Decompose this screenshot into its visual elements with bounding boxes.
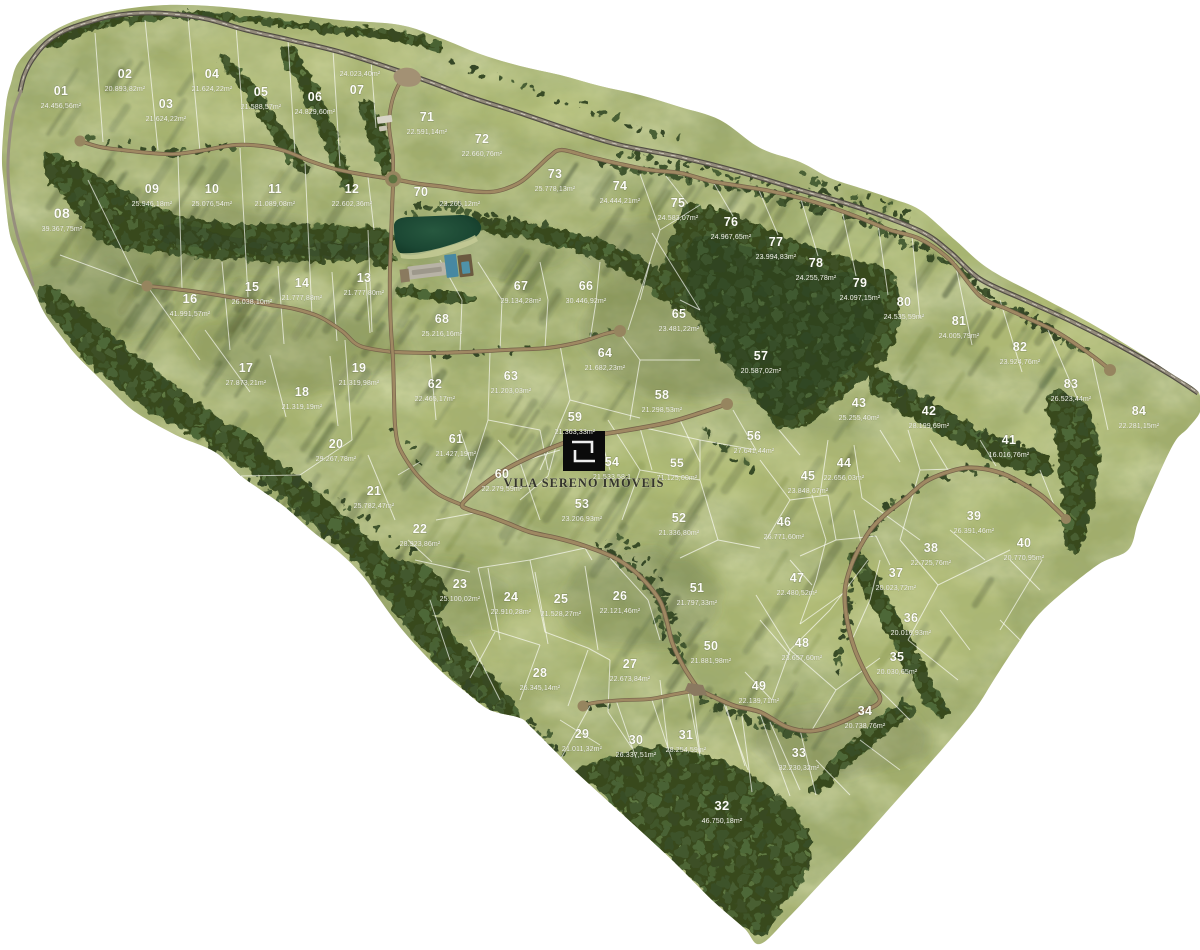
svg-text:25.076,54m²: 25.076,54m² <box>192 201 233 208</box>
svg-text:22: 22 <box>413 522 428 536</box>
svg-text:25.100,02m²: 25.100,02m² <box>440 596 481 603</box>
svg-text:22.602,36m²: 22.602,36m² <box>332 201 373 208</box>
svg-text:77: 77 <box>769 235 784 249</box>
svg-text:VILA SERENO IMÓVEIS: VILA SERENO IMÓVEIS <box>503 476 664 490</box>
svg-text:21.777,80m²: 21.777,80m² <box>344 290 385 297</box>
svg-text:28.254,59m²: 28.254,59m² <box>666 747 707 754</box>
svg-text:79: 79 <box>853 276 868 290</box>
svg-text:75: 75 <box>671 196 686 210</box>
svg-text:17: 17 <box>239 361 254 375</box>
svg-text:21.319,19m²: 21.319,19m² <box>282 404 323 411</box>
svg-text:62: 62 <box>428 377 443 391</box>
svg-text:64: 64 <box>598 346 613 360</box>
svg-text:67: 67 <box>514 279 529 293</box>
svg-text:21.624,22m²: 21.624,22m² <box>192 86 233 93</box>
svg-text:21.319,98m²: 21.319,98m² <box>339 380 380 387</box>
svg-text:22.725,76m²: 22.725,76m² <box>911 560 952 567</box>
svg-text:26.038,10m²: 26.038,10m² <box>232 299 273 306</box>
svg-text:34: 34 <box>858 704 873 718</box>
svg-text:50: 50 <box>704 639 719 653</box>
svg-text:56: 56 <box>747 429 762 443</box>
svg-text:20.587,02m²: 20.587,02m² <box>741 368 782 375</box>
svg-text:28: 28 <box>533 666 548 680</box>
svg-text:15: 15 <box>245 280 260 294</box>
svg-text:20.738,76m²: 20.738,76m² <box>845 723 886 730</box>
svg-text:24.583,07m²: 24.583,07m² <box>658 215 699 222</box>
svg-text:29.134,28m²: 29.134,28m² <box>501 298 542 305</box>
svg-text:21.533,58,1: 21.533,58,1 <box>593 474 631 481</box>
svg-text:49: 49 <box>752 679 767 693</box>
svg-text:07: 07 <box>350 83 365 97</box>
svg-text:52: 52 <box>672 511 687 525</box>
svg-text:29: 29 <box>575 727 590 741</box>
svg-text:82: 82 <box>1013 340 1028 354</box>
svg-text:02: 02 <box>118 67 133 81</box>
svg-text:22.281,15m²: 22.281,15m² <box>1119 423 1160 430</box>
svg-text:20: 20 <box>329 437 344 451</box>
svg-text:24.444,21m²: 24.444,21m² <box>600 198 641 205</box>
svg-text:23.848,67m²: 23.848,67m² <box>788 488 829 495</box>
svg-text:22.673,84m²: 22.673,84m² <box>610 676 651 683</box>
svg-text:25.216,16m²: 25.216,16m² <box>422 331 463 338</box>
svg-text:60: 60 <box>495 467 510 481</box>
svg-text:22.591,14m²: 22.591,14m² <box>407 129 448 136</box>
svg-text:44: 44 <box>837 456 852 470</box>
svg-text:84: 84 <box>1132 404 1147 418</box>
svg-text:21.881,98m²: 21.881,98m² <box>691 658 732 665</box>
svg-text:25.255,40m²: 25.255,40m² <box>839 415 880 422</box>
svg-text:26.523,44m²: 26.523,44m² <box>1051 396 1092 403</box>
svg-text:21.203,03m²: 21.203,03m² <box>491 388 532 395</box>
svg-text:26.337,51m²: 26.337,51m² <box>616 752 657 759</box>
svg-text:32: 32 <box>714 798 729 813</box>
svg-text:10: 10 <box>205 182 220 196</box>
svg-text:41.991,57m²: 41.991,57m² <box>170 311 211 318</box>
svg-text:24.967,65m²: 24.967,65m² <box>711 234 752 241</box>
svg-text:19: 19 <box>352 361 367 375</box>
svg-text:27: 27 <box>623 657 638 671</box>
svg-text:48: 48 <box>795 636 810 650</box>
svg-text:59: 59 <box>568 410 583 424</box>
svg-text:14: 14 <box>295 276 310 290</box>
svg-text:40: 40 <box>1017 536 1032 550</box>
svg-text:12: 12 <box>345 182 360 196</box>
svg-text:36: 36 <box>904 611 919 625</box>
svg-text:20.023,72m²: 20.023,72m² <box>876 585 917 592</box>
svg-text:35: 35 <box>890 650 905 664</box>
svg-text:20.030,65m²: 20.030,65m² <box>877 669 918 676</box>
svg-text:25: 25 <box>554 592 569 606</box>
svg-text:24.023,40m²: 24.023,40m² <box>340 71 381 78</box>
svg-text:58: 58 <box>655 388 670 402</box>
svg-text:20.016,93m²: 20.016,93m² <box>891 630 932 637</box>
svg-text:03: 03 <box>159 97 174 111</box>
svg-text:70: 70 <box>414 185 429 199</box>
svg-text:20.770,95m²: 20.770,95m² <box>1004 555 1045 562</box>
svg-text:76: 76 <box>724 215 739 229</box>
svg-text:11: 11 <box>268 182 282 196</box>
svg-text:26.345,14m²: 26.345,14m² <box>520 685 561 692</box>
svg-text:54: 54 <box>605 455 620 469</box>
svg-text:22.465,17m²: 22.465,17m² <box>415 396 456 403</box>
svg-text:66: 66 <box>579 279 594 293</box>
svg-text:25.778,13m²: 25.778,13m² <box>535 186 576 193</box>
svg-text:26: 26 <box>613 589 628 603</box>
svg-text:21.624,22m²: 21.624,22m² <box>146 116 187 123</box>
svg-text:33: 33 <box>792 746 807 760</box>
svg-text:26.771,60m²: 26.771,60m² <box>764 534 805 541</box>
svg-text:24.097,15m²: 24.097,15m² <box>840 295 881 302</box>
svg-text:09: 09 <box>145 182 160 196</box>
svg-text:21.089,08m²: 21.089,08m² <box>255 201 296 208</box>
svg-text:71: 71 <box>420 110 435 124</box>
svg-text:83: 83 <box>1064 377 1079 391</box>
svg-text:27.873,21m²: 27.873,21m² <box>226 380 267 387</box>
svg-text:22.279,59m²: 22.279,59m² <box>482 486 523 493</box>
svg-text:73: 73 <box>548 167 563 181</box>
svg-text:37: 37 <box>889 566 904 580</box>
svg-text:29.267,78m²: 29.267,78m² <box>316 456 357 463</box>
svg-text:21.528,27m²: 21.528,27m² <box>541 611 582 618</box>
svg-text:41: 41 <box>1002 433 1017 447</box>
svg-text:27.641,44m²: 27.641,44m² <box>734 448 775 455</box>
svg-text:18: 18 <box>295 385 310 399</box>
svg-text:63: 63 <box>504 369 519 383</box>
svg-text:23: 23 <box>453 577 468 591</box>
svg-text:08: 08 <box>54 205 70 221</box>
svg-text:31: 31 <box>679 728 694 742</box>
svg-text:78: 78 <box>809 256 824 270</box>
svg-text:42: 42 <box>922 404 937 418</box>
svg-text:46.750,18m²: 46.750,18m² <box>702 818 743 825</box>
svg-text:39.367,75m²: 39.367,75m² <box>42 226 83 233</box>
svg-text:24.829,60m²: 24.829,60m² <box>295 109 336 116</box>
svg-text:01: 01 <box>54 84 69 98</box>
svg-text:53: 53 <box>575 497 590 511</box>
svg-text:21.336,80m²: 21.336,80m² <box>659 530 700 537</box>
svg-text:24.255,78m²: 24.255,78m² <box>796 275 837 282</box>
svg-text:23.206,93m²: 23.206,93m² <box>562 516 603 523</box>
svg-text:32.230,32m²: 32.230,32m² <box>779 765 820 772</box>
svg-text:28.923,86m²: 28.923,86m² <box>400 541 441 548</box>
svg-text:23.265,12m²: 23.265,12m² <box>440 201 481 208</box>
svg-text:46: 46 <box>777 515 792 529</box>
svg-text:21.427,19m²: 21.427,19m² <box>436 451 477 458</box>
svg-text:24.456,56m²: 24.456,56m² <box>41 103 82 110</box>
svg-text:57: 57 <box>754 349 769 363</box>
svg-text:68: 68 <box>435 312 450 326</box>
svg-text:28.199,69m²: 28.199,69m² <box>909 423 950 430</box>
svg-text:21.777,88m²: 21.777,88m² <box>282 295 323 302</box>
svg-text:24.005,79m²: 24.005,79m² <box>939 333 980 340</box>
svg-text:80: 80 <box>897 295 912 309</box>
svg-text:06: 06 <box>308 90 323 104</box>
svg-text:16: 16 <box>182 291 197 306</box>
svg-text:30.446,92m²: 30.446,92m² <box>566 298 607 305</box>
svg-text:38: 38 <box>924 541 939 555</box>
svg-text:21.682,23m²: 21.682,23m² <box>585 365 626 372</box>
svg-text:65: 65 <box>672 307 687 321</box>
svg-text:22.139,71m²: 22.139,71m² <box>739 698 780 705</box>
svg-text:25.782,47m²: 25.782,47m² <box>354 503 395 510</box>
svg-text:30: 30 <box>629 733 644 747</box>
svg-text:26.391,46m²: 26.391,46m² <box>954 528 995 535</box>
svg-text:24.535,59m²: 24.535,59m² <box>884 314 925 321</box>
svg-text:81: 81 <box>952 314 967 328</box>
svg-text:25.946,18m²: 25.946,18m² <box>132 201 173 208</box>
svg-text:51: 51 <box>690 581 705 595</box>
svg-text:22.910,28m²: 22.910,28m² <box>491 609 532 616</box>
svg-text:55: 55 <box>670 456 684 470</box>
svg-text:61: 61 <box>449 432 464 446</box>
svg-text:21.797,33m²: 21.797,33m² <box>677 600 718 607</box>
svg-text:39: 39 <box>967 509 982 523</box>
svg-text:05: 05 <box>254 85 269 99</box>
svg-text:22.121,46m²: 22.121,46m² <box>600 608 641 615</box>
svg-text:22.480,52m²: 22.480,52m² <box>777 590 818 597</box>
svg-text:71.125,00m²: 71.125,00m² <box>657 475 698 482</box>
svg-text:21: 21 <box>367 484 382 498</box>
svg-text:23.657,60m²: 23.657,60m² <box>782 655 823 662</box>
svg-text:21.298,53m²: 21.298,53m² <box>642 407 683 414</box>
svg-text:16.016,76m²: 16.016,76m² <box>989 452 1030 459</box>
svg-text:22.660,76m²: 22.660,76m² <box>462 151 503 158</box>
svg-text:21.011,32m²: 21.011,32m² <box>562 746 603 753</box>
svg-text:20.893,82m²: 20.893,82m² <box>105 86 146 93</box>
svg-text:23.994,83m²: 23.994,83m² <box>756 254 797 261</box>
svg-text:23.924,76m²: 23.924,76m² <box>1000 359 1041 366</box>
svg-text:21.363,33m²: 21.363,33m² <box>555 429 596 436</box>
svg-text:23.481,22m²: 23.481,22m² <box>659 326 700 333</box>
svg-text:43: 43 <box>852 396 867 410</box>
svg-text:22.656,03m²: 22.656,03m² <box>824 475 865 482</box>
svg-text:13: 13 <box>357 271 372 285</box>
svg-text:72: 72 <box>475 132 490 146</box>
svg-text:24: 24 <box>504 590 519 604</box>
svg-text:74: 74 <box>613 179 628 193</box>
svg-text:04: 04 <box>205 67 220 81</box>
svg-text:21.588,57m²: 21.588,57m² <box>241 104 282 111</box>
svg-text:47: 47 <box>790 571 805 585</box>
svg-text:45: 45 <box>801 469 816 483</box>
